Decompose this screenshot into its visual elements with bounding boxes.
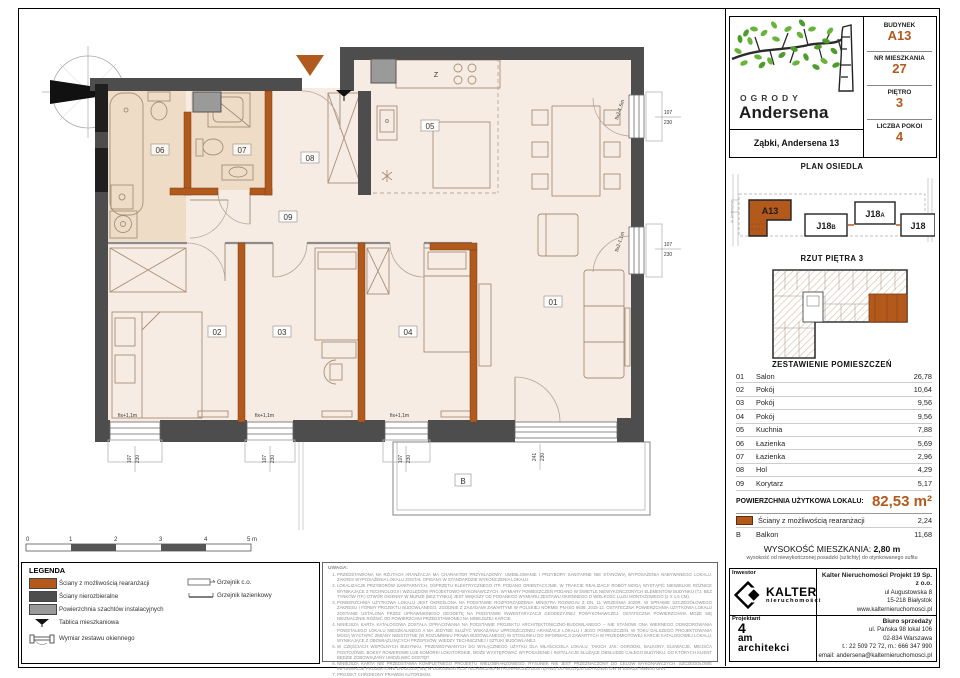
radiator-co-icon [187, 578, 217, 586]
svg-text:107: 107 [127, 455, 133, 464]
designer-logo: 4 am architekci [738, 623, 790, 654]
svg-text:230: 230 [406, 455, 412, 464]
total-area-label: POWIERZCHNIA UŻYTKOWA LOKALU: [736, 498, 872, 505]
divider [867, 85, 932, 86]
radiator-bathroom-icon [187, 591, 217, 599]
svg-text:230: 230 [270, 455, 276, 464]
legend-item: Grzejnik łazienkowy [187, 591, 272, 599]
legend-item-label: Ściany z możliwością rearanżacji [59, 580, 149, 587]
notes-box: UWAGA: PRZEDSTAWIONA NA RZUTACH ARANŻACJ… [322, 562, 718, 662]
room-label-04: 04 [404, 328, 413, 337]
designer-logo-line: architekci [738, 644, 790, 654]
legend-item-label: Ściany nierozbieralne [59, 593, 118, 600]
room-label-06: 06 [156, 146, 165, 155]
height-value: 2,80 m [874, 544, 901, 554]
room-label-07: 07 [238, 146, 247, 155]
room-area: 7,88 [898, 425, 932, 434]
sidebar: OGRODY Andersena Ząbki, Andersena 13 BUD… [725, 8, 941, 666]
street-label: ul. Andersena [730, 201, 734, 223]
designer-row: Projektant 4 am architekci Biuro sprzeda… [730, 615, 936, 661]
note-item: LOKALIZACJE PRZYBORÓW SANITARNYCH, OSPRZ… [337, 583, 712, 599]
room-label-05: 05 [426, 122, 435, 131]
room-area: 10,64 [898, 385, 932, 394]
info-value: 3 [863, 96, 936, 109]
legend-item: Ściany z możliwością rearanżacji [29, 578, 149, 589]
room-no: 02 [736, 385, 756, 394]
table-row: 03Pokój9,56 [736, 397, 932, 410]
room-label-02: 02 [213, 328, 222, 337]
room-name: Pokój [756, 398, 898, 407]
room-name: Pokój [756, 385, 898, 394]
total-area-row: POWIERZCHNIA UŻYTKOWA LOKALU: 82,53 m² [736, 491, 932, 514]
site-plan-title: PLAN OSIEDLA [729, 162, 935, 171]
info-value: 4 [863, 130, 936, 143]
height-note: wysokość od niewykończonej posadzki (szl… [729, 555, 935, 561]
tree-branch-illustration [730, 19, 863, 93]
info-row-apartment-number: NR MIESZKANIA 27 [863, 55, 936, 75]
room-no: 03 [736, 398, 756, 407]
room-label-03: 03 [278, 328, 287, 337]
company-address-2: 15-218 Białystok [818, 597, 932, 605]
kalter-name: KALTER [766, 587, 822, 598]
site-plan-map: ul. Andersena A13 J18B J18A J18 [729, 172, 935, 248]
window-dimension-icon [29, 631, 59, 645]
company-address-1: ul Augustowska 8 [818, 589, 932, 597]
note-item: W CZĘŚCIACH WSPÓLNYCH BUDYNKU, PRZEWIDYW… [337, 644, 712, 660]
legend-item-label: Grzejnik łazienkowy [217, 592, 272, 599]
brand-logo: OGRODY Andersena Ząbki, Andersena 13 [730, 17, 864, 157]
divider [867, 119, 932, 120]
sales-office-title: Biuro sprzedaży [818, 618, 932, 626]
room-name: Łazienka [756, 439, 898, 448]
table-row: 06Łazienka5,69 [736, 437, 932, 450]
sales-office-address-1: ul. Pańska 98 lokal 106 [818, 626, 932, 634]
apartment-info: BUDYNEK A13 NR MIESZKANIA 27 PIĘTRO 3 LI… [863, 17, 936, 157]
window-fix-label: fix+1,1m [118, 413, 137, 419]
svg-text:107: 107 [398, 455, 404, 464]
legend: LEGENDA Ściany z możliwością rearanżacji… [21, 562, 320, 664]
brand-name-top: OGRODY [740, 93, 802, 103]
window-fix-label: fix+1,1m [255, 413, 274, 419]
info-row-rooms: LICZBA POKOI 4 [863, 123, 936, 143]
floor-thumbnail [729, 264, 935, 362]
legend-item: Wymiar zestawu okiennego [29, 631, 135, 645]
row-no: B [736, 530, 756, 539]
note-item: PRZEDSTAWIONA NA RZUTACH ARANŻACJA MA CH… [337, 572, 712, 583]
room-no: 08 [736, 465, 756, 474]
designer-label: Projektant [732, 616, 760, 622]
svg-text:107: 107 [664, 110, 673, 116]
sales-office-address-2: 02-834 Warszawa [818, 635, 932, 643]
room-area: 4,29 [898, 465, 932, 474]
room-area: 5,17 [898, 479, 932, 488]
sales-office-email: email: andersena@kalternieruchomosci.pl [818, 652, 932, 660]
entrance-arrow-icon [296, 55, 324, 76]
apartment-board-icon [29, 617, 59, 627]
balcony [299, 442, 650, 530]
table-row: 07Łazienka2,96 [736, 450, 932, 463]
balcony-row: B Balkon 11,68 [736, 528, 932, 541]
legend-item: Powierzchnia szachtów instalacyjnych [29, 604, 164, 615]
sales-office-phone: t.: 22 509 72 72, m.: 666 347 990 [818, 643, 932, 651]
kalter-logo-icon [734, 581, 762, 609]
room-no: 07 [736, 452, 756, 461]
legend-item: Ściany nierozbieralne [29, 591, 118, 602]
table-row: 04Pokój9,56 [736, 410, 932, 423]
room-no: 04 [736, 412, 756, 421]
svg-text:230: 230 [540, 453, 546, 462]
note-item: POWIERZCHNIA UŻYTKOWA LOKALU JEST OKREŚL… [337, 600, 712, 622]
svg-text:J18: J18 [910, 221, 925, 231]
room-no: 05 [736, 425, 756, 434]
building-a13-label: A13 [762, 206, 779, 216]
investor-row: Inwestor KALTER nieruchomości Kalter Nie… [730, 569, 936, 616]
structural-wall-swatch-icon [29, 591, 59, 602]
investor-label: Inwestor [732, 570, 756, 576]
rearrangeable-wall-swatch-icon [736, 516, 753, 525]
kalter-subname: nieruchomości [766, 598, 822, 604]
svg-text:5 m: 5 m [247, 537, 257, 543]
catalog-sheet: N [0, 0, 960, 678]
window-fix-label: fix+1,1m [390, 413, 409, 419]
divider [867, 51, 932, 52]
header-block: OGRODY Andersena Ząbki, Andersena 13 BUD… [729, 16, 937, 158]
svg-text:230: 230 [664, 252, 673, 258]
total-area-value: 82,53 m² [872, 493, 932, 510]
legend-item: Grzejnik c.o. [187, 578, 251, 586]
info-value: 27 [863, 62, 936, 75]
note-item: NINIEJSZA KARTA KATALOGOWA ZOSTAŁA OPRAC… [337, 622, 712, 644]
room-no: 06 [736, 439, 756, 448]
legend-item-label: Grzejnik c.o. [217, 579, 251, 586]
room-name: Pokój [756, 412, 898, 421]
legend-item-label: Powierzchnia szachtów instalacyjnych [59, 606, 164, 613]
svg-text:230: 230 [135, 455, 141, 464]
table-row: 02Pokój10,64 [736, 383, 932, 396]
room-label-08: 08 [306, 154, 315, 163]
info-row-floor: PIĘTRO 3 [863, 89, 936, 109]
svg-text:3: 3 [159, 537, 163, 543]
floor-thumb-title: RZUT PIĘTRA 3 [729, 254, 935, 263]
notes-title: UWAGA: [328, 566, 712, 571]
info-value: A13 [863, 29, 936, 42]
legend-item-label: Tablica mieszkaniowa [59, 619, 119, 626]
company-name: Kalter Nieruchomości Projekt 19 Sp. z o.… [818, 572, 932, 589]
legend-item-label: Wymiar zestawu okiennego [59, 635, 135, 642]
table-row: 01Salon26,78 [736, 370, 932, 383]
rearrangeable-wall-swatch-icon [29, 578, 59, 589]
notes-list: PRZEDSTAWIONA NA RZUTACH ARANŻACJA MA CH… [328, 572, 712, 678]
row-area: 11,68 [898, 530, 932, 539]
shaft-swatch-icon [29, 604, 59, 615]
row-name: Ściany z możliwością rearanżacji [758, 516, 898, 525]
rooms-table-title: ZESTAWIENIE POMIESZCZEŃ [729, 360, 935, 369]
room-area: 9,56 [898, 412, 932, 421]
room-no: 09 [736, 479, 756, 488]
room-area: 9,56 [898, 398, 932, 407]
height-label: WYSOKOŚĆ MIESZKANIA: [764, 544, 871, 554]
room-name: Hol [756, 465, 898, 474]
floor-plan: N [0, 0, 725, 560]
balcony-label: B [460, 477, 465, 486]
note-item: NINIEJSZA KARTA NIE PRZEDSTAWIA KOMPLETN… [337, 661, 712, 672]
svg-text:2: 2 [114, 537, 118, 543]
svg-text:230: 230 [664, 120, 673, 126]
rearrangeable-walls-row: Ściany z możliwością rearanżacji 2,24 [736, 514, 932, 528]
contact-block: Inwestor KALTER nieruchomości Kalter Nie… [729, 568, 937, 662]
svg-text:241: 241 [532, 453, 538, 462]
room-name: Łazienka [756, 452, 898, 461]
company-website: www.kalternieruchomosci.pl [818, 606, 932, 614]
svg-text:107: 107 [262, 455, 268, 464]
room-label-09: 09 [284, 213, 293, 222]
note-item: PROJEKT CHRONIONY PRAWEM AUTORSKIM. [337, 672, 712, 677]
scale-bar: 0 1 2 3 4 5 m [26, 537, 257, 551]
table-row: 08Hol4,29 [736, 464, 932, 477]
room-label-01: 01 [549, 298, 558, 307]
kitchen-sink-label: Z [434, 72, 439, 79]
table-row: 09Korytarz5,17 [736, 477, 932, 490]
svg-text:4: 4 [204, 537, 208, 543]
row-name: Balkon [756, 530, 898, 539]
room-no: 01 [736, 372, 756, 381]
room-area: 2,96 [898, 452, 932, 461]
room-name: Korytarz [756, 479, 898, 488]
info-row-building: BUDYNEK A13 [863, 22, 936, 42]
table-row: 05Kuchnia7,88 [736, 424, 932, 437]
project-address: Ząbki, Andersena 13 [730, 129, 863, 158]
room-area: 5,69 [898, 439, 932, 448]
brand-name: Andersena [739, 103, 829, 123]
rooms-table: 01Salon26,78 02Pokój10,64 03Pokój9,56 04… [736, 370, 932, 541]
svg-text:107: 107 [664, 242, 673, 248]
legend-item: Tablica mieszkaniowa [29, 617, 119, 627]
svg-text:1: 1 [69, 537, 73, 543]
apartment-height: WYSOKOŚĆ MIESZKANIA: 2,80 m wysokość od … [729, 544, 935, 561]
room-area: 26,78 [898, 372, 932, 381]
room-name: Kuchnia [756, 425, 898, 434]
svg-text:0: 0 [26, 537, 30, 543]
room-name: Salon [756, 372, 898, 381]
row-area: 2,24 [898, 516, 932, 525]
legend-title: LEGENDA [29, 566, 65, 575]
